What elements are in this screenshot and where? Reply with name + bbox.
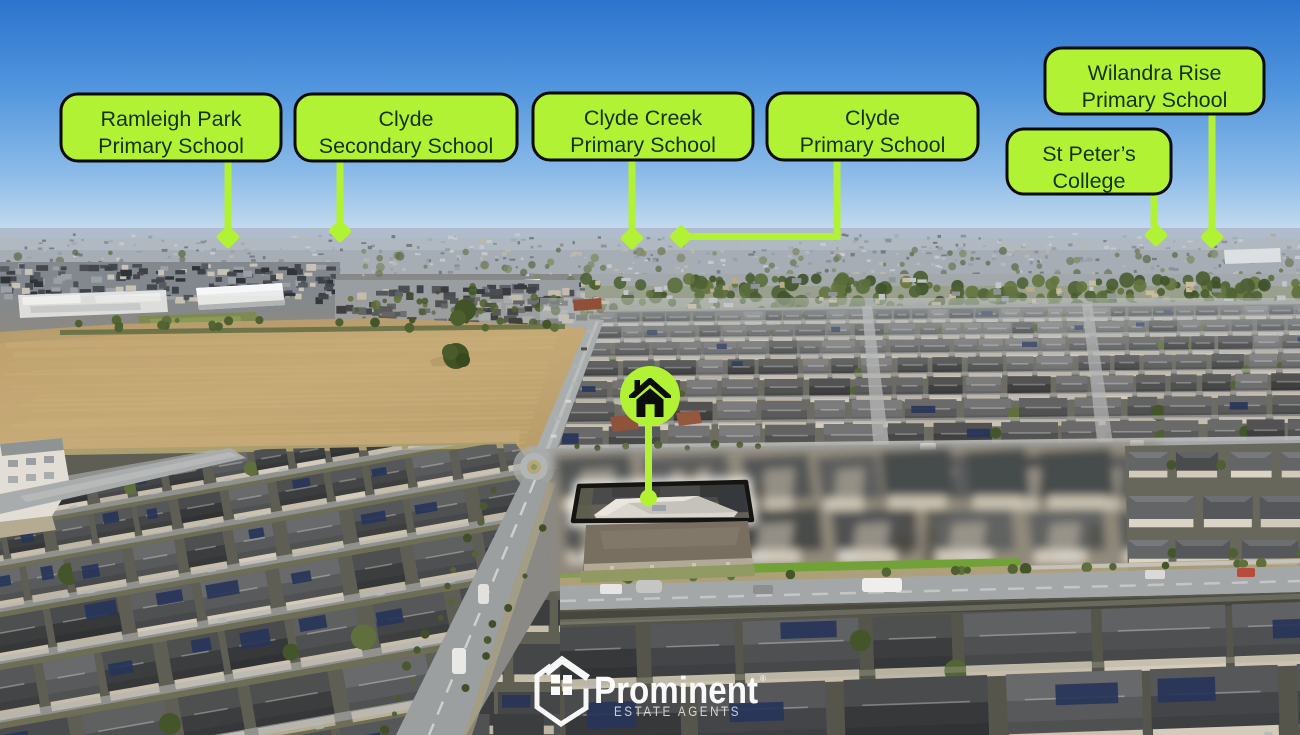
- svg-text:College: College: [1053, 169, 1126, 193]
- svg-text:Clyde Creek: Clyde Creek: [584, 106, 703, 130]
- svg-text:Primary School: Primary School: [570, 133, 716, 157]
- svg-text:®: ®: [760, 674, 766, 683]
- svg-text:St Peter’s: St Peter’s: [1042, 142, 1136, 166]
- svg-text:Clyde: Clyde: [845, 106, 900, 130]
- svg-text:Wilandra Rise: Wilandra Rise: [1088, 61, 1222, 85]
- svg-text:Primary School: Primary School: [1082, 88, 1228, 112]
- svg-text:Primary School: Primary School: [98, 134, 244, 158]
- svg-text:ESTATE AGENTS: ESTATE AGENTS: [614, 704, 741, 719]
- svg-text:Clyde: Clyde: [379, 107, 434, 131]
- svg-text:Ramleigh Park: Ramleigh Park: [101, 107, 242, 131]
- svg-text:Primary School: Primary School: [800, 133, 946, 157]
- svg-text:Secondary School: Secondary School: [319, 134, 494, 158]
